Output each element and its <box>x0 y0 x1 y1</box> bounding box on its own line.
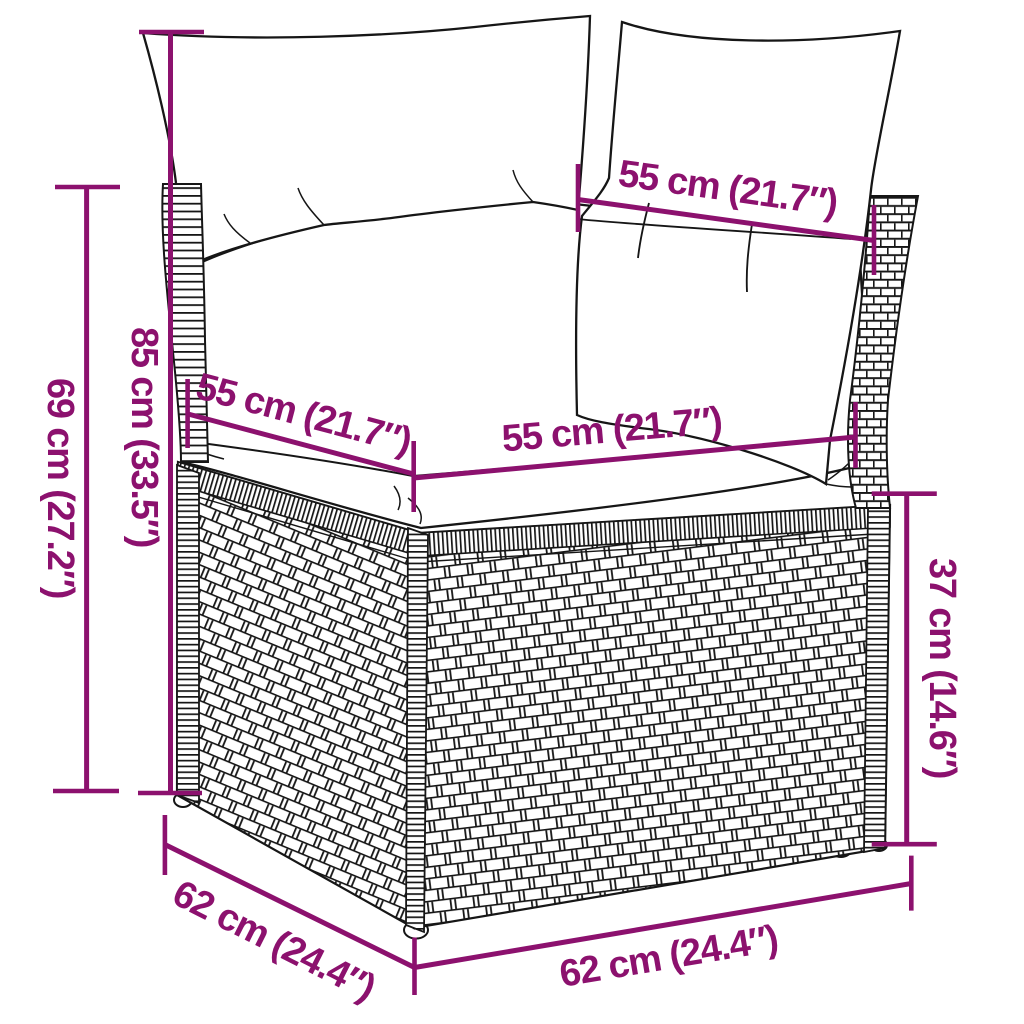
svg-text:37 cm (14.6″): 37 cm (14.6″) <box>921 558 963 778</box>
svg-text:69 cm (27.2″): 69 cm (27.2″) <box>39 378 81 598</box>
svg-text:85 cm (33.5″): 85 cm (33.5″) <box>123 327 165 547</box>
